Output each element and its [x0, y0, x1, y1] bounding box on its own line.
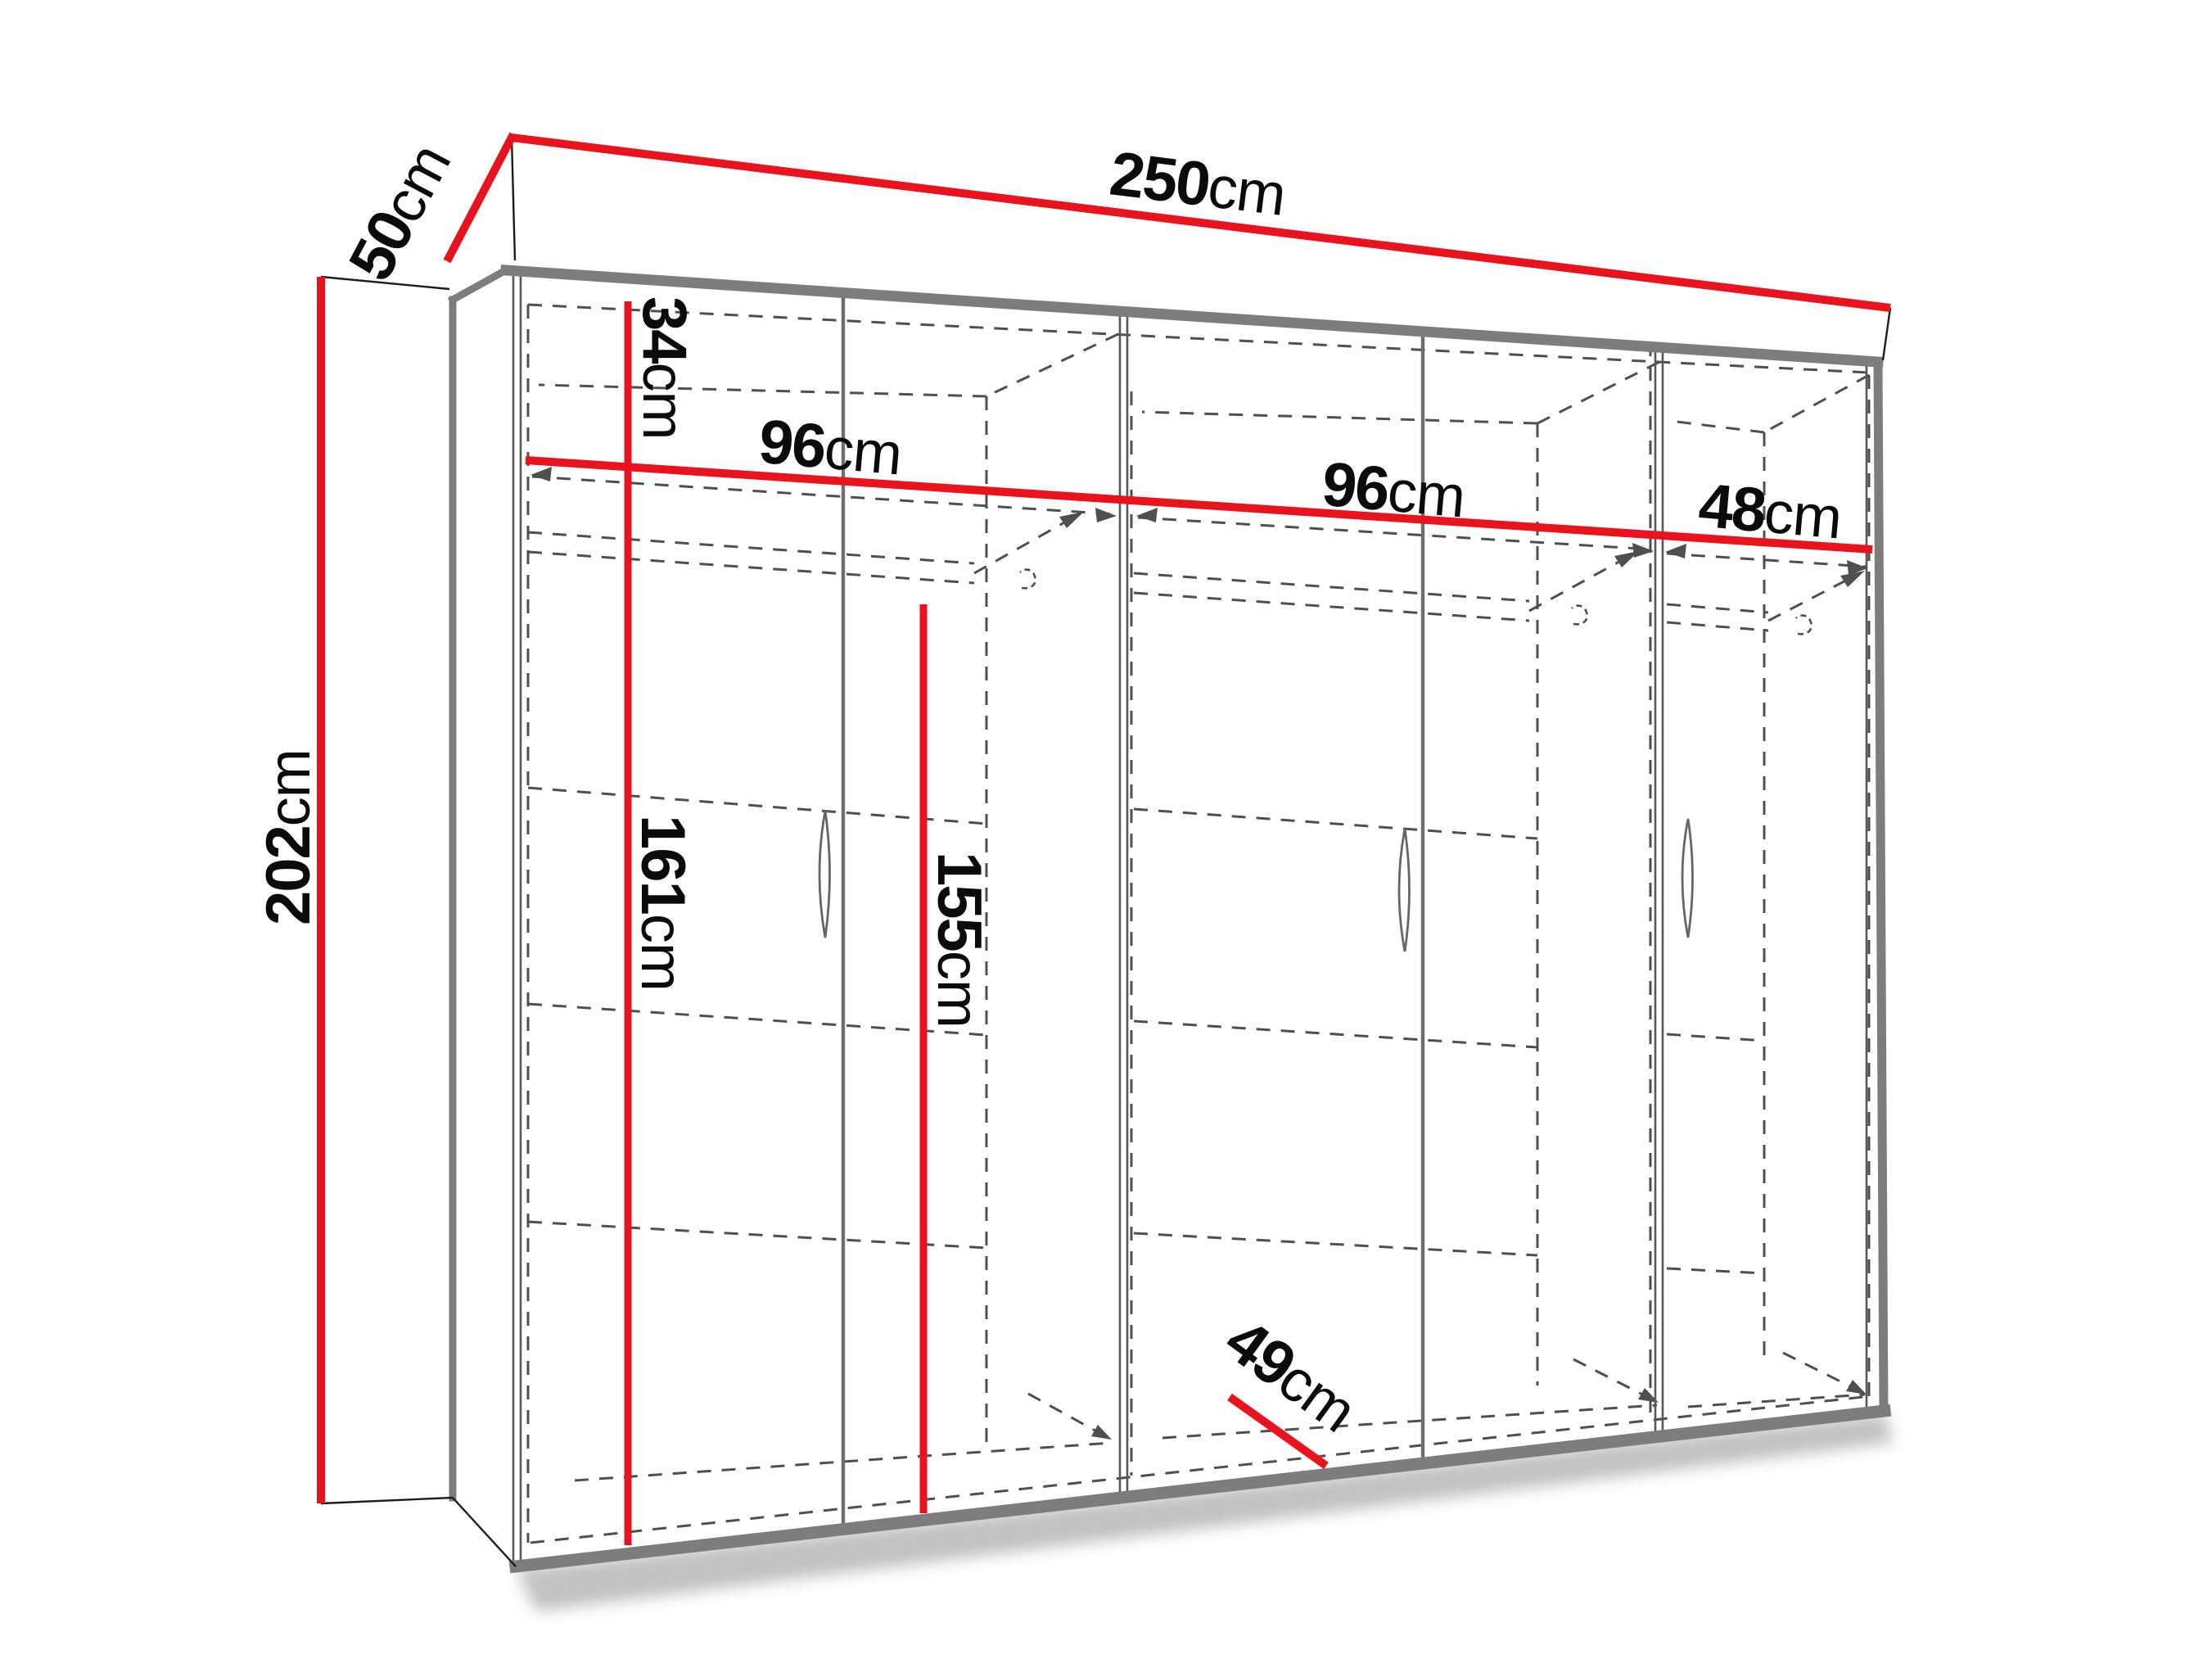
right-front-edge [1878, 362, 1884, 1410]
dimension-line-depth-50 [447, 134, 513, 261]
label-rail-height-155: 155cm [924, 852, 994, 1028]
label-lower-height-161: 161cm [628, 815, 697, 991]
diagram-canvas: 250cm 50cm 202cm 34cm 96cm 96cm 48cm 161… [0, 0, 2212, 1659]
extension-line [321, 1498, 453, 1503]
label-depth-50: 50cm [336, 133, 464, 292]
label-top-compartment-34: 34cm [630, 296, 699, 440]
wardrobe-dimension-diagram: 250cm 50cm 202cm 34cm 96cm 96cm 48cm 161… [0, 0, 2212, 1659]
left-side-panel [453, 270, 516, 1566]
label-height-202: 202cm [254, 749, 323, 925]
front-face [506, 270, 1884, 1566]
